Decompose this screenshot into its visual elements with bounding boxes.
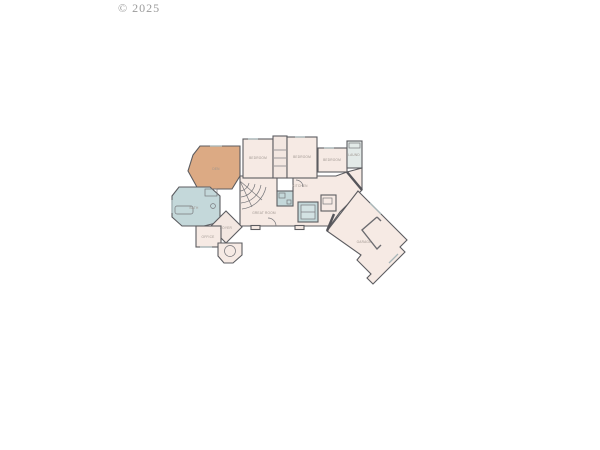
room-label: GARAGE — [357, 240, 372, 244]
room-label: BEDROOM — [293, 155, 311, 159]
room-label: GREAT ROOM — [252, 211, 276, 215]
floor-plan-drawing: DEN BEDROOM BEDROOM BEDROOM LAUND BATH G… — [0, 0, 600, 450]
room-shapes — [172, 136, 407, 284]
room-label: BEDROOM — [323, 158, 341, 162]
listing-photo: © 2025 — [0, 0, 600, 450]
window-bay-1 — [251, 226, 260, 230]
window-bay-2 — [295, 226, 304, 230]
bay-nook-shape — [218, 243, 242, 263]
room-label: BEDROOM — [249, 156, 267, 160]
room-label: BATH — [189, 206, 199, 210]
room-label: FOYER — [220, 226, 232, 230]
room-label: DEN — [212, 167, 220, 171]
room-label: OFFICE — [202, 235, 215, 239]
room-label: LAUND — [348, 153, 360, 157]
hall-closet-shape — [273, 136, 287, 178]
room-label: KITCHEN — [292, 184, 308, 188]
